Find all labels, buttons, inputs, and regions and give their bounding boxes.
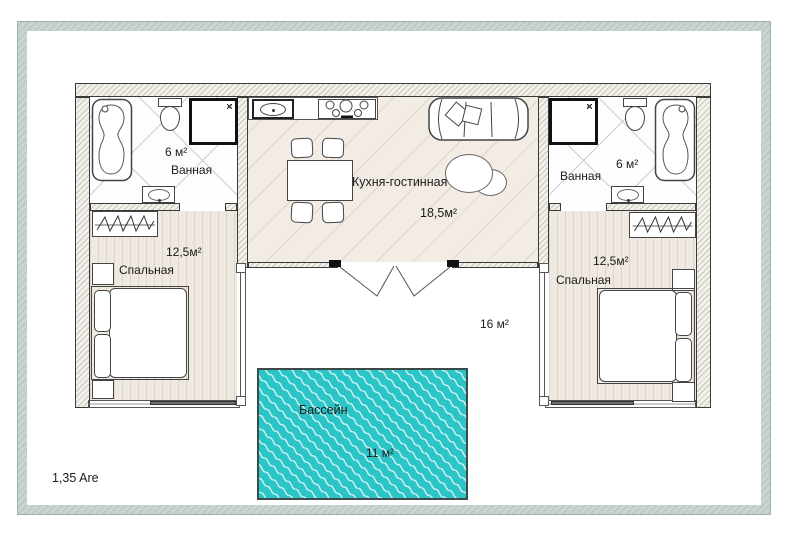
pool-area-label: 11 м² xyxy=(366,446,394,460)
pool xyxy=(257,368,468,500)
sink-icon xyxy=(142,186,175,203)
chair-icon xyxy=(322,138,345,159)
wall-inner-left xyxy=(237,97,248,268)
floor-plan: 6 м² Ванная 6 м² Ванная Кухня-гостинная … xyxy=(0,0,800,535)
wall-left-outer xyxy=(75,97,90,408)
bathroom-right-name-label: Ванная xyxy=(560,169,601,183)
post-left-bottom xyxy=(236,396,246,406)
wall-top xyxy=(75,83,711,97)
wall-bath-bed-left-a xyxy=(90,203,180,211)
chair-icon xyxy=(290,137,313,158)
bed-icon xyxy=(109,288,187,378)
wardrobe-icon xyxy=(629,212,696,238)
bedroom-left-area-label: 12,5м² xyxy=(166,245,202,259)
door-hinge-right xyxy=(447,260,459,267)
glass-wall-left-wing xyxy=(240,268,246,400)
bedroom-right-name-label: Спальная xyxy=(556,273,611,287)
bathroom-right-area-label: 6 м² xyxy=(616,157,638,171)
door-hinge-left xyxy=(329,260,341,267)
glass-wall-right-wing xyxy=(539,268,545,400)
bedroom-right-area-label: 12,5м² xyxy=(593,254,629,268)
post-right-top xyxy=(539,263,549,273)
bathroom-left-name-label: Ванная xyxy=(171,163,212,177)
bathroom-left-area-label: 6 м² xyxy=(165,145,187,159)
wall-bath-bed-right-a xyxy=(549,203,561,211)
pool-name-label: Бассейн xyxy=(299,403,348,417)
kitchen-living-area-label: 18,5м² xyxy=(420,206,457,220)
sofa-icon xyxy=(428,97,529,141)
rug-oval-large xyxy=(445,154,493,193)
wall-inner-right xyxy=(538,97,549,268)
shower-cabin-icon xyxy=(189,98,238,145)
window-bar-left xyxy=(150,401,236,405)
kitchen-living-name-label: Кухня-гостинная xyxy=(352,175,447,189)
pillow-icon xyxy=(94,334,111,378)
pillow-icon xyxy=(675,292,692,336)
stove-icon xyxy=(318,99,376,119)
terrace-area-label: 16 м² xyxy=(480,317,509,331)
wall-bath-bed-right-b xyxy=(606,203,696,211)
wardrobe-icon xyxy=(92,211,158,237)
plot-area-label: 1,35 Are xyxy=(52,471,99,485)
pillow-icon xyxy=(94,290,111,332)
dining-table xyxy=(287,160,353,201)
bathtub-icon xyxy=(91,98,133,182)
nightstand-icon xyxy=(92,263,114,285)
wall-kitchen-bottom-right xyxy=(452,262,538,268)
sink-icon xyxy=(611,186,644,203)
nightstand-icon xyxy=(92,380,114,399)
bathtub-icon xyxy=(654,98,696,182)
window-bar-right xyxy=(551,401,634,405)
shower-cabin-icon xyxy=(549,98,598,145)
wall-bath-bed-left-b xyxy=(225,203,237,211)
wall-right-outer xyxy=(696,97,711,408)
chair-icon xyxy=(290,201,313,223)
pillow-icon xyxy=(675,338,692,382)
wall-kitchen-bottom-left xyxy=(248,262,338,268)
kitchen-sink-icon xyxy=(252,99,294,119)
bedroom-left-name-label: Спальная xyxy=(119,263,174,277)
nightstand-icon xyxy=(672,382,695,402)
post-right-bottom xyxy=(539,396,549,406)
post-left-top xyxy=(236,263,246,273)
chair-icon xyxy=(322,202,345,224)
bed-icon xyxy=(599,290,677,382)
